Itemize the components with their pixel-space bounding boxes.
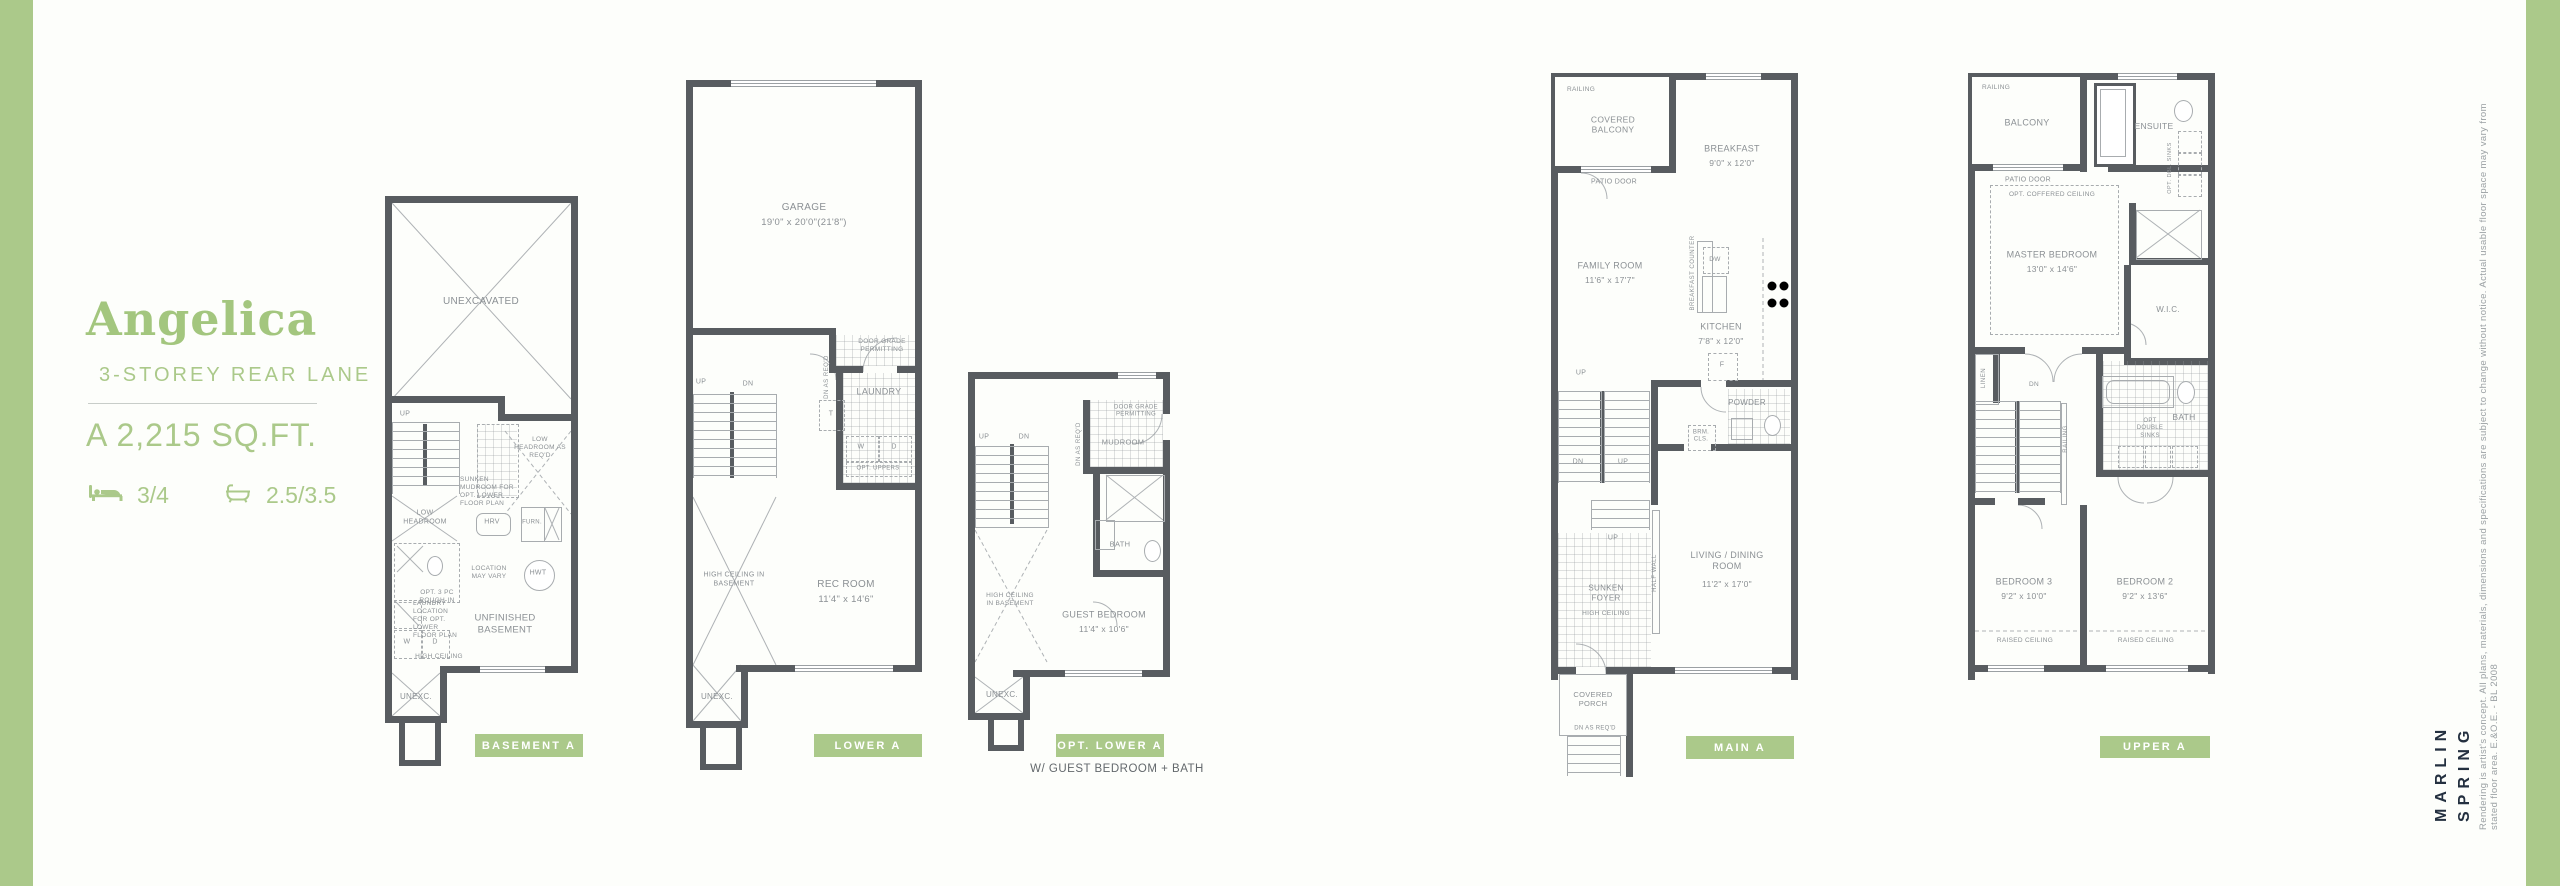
vanity-box bbox=[2178, 131, 2202, 153]
wall bbox=[1163, 372, 1170, 414]
room-label: MASTER BEDROOM bbox=[2007, 250, 2098, 261]
wall bbox=[686, 721, 748, 728]
wall bbox=[2129, 203, 2136, 265]
room-label: LIVING / DINING ROOM bbox=[1681, 550, 1773, 572]
window bbox=[795, 665, 893, 672]
wall bbox=[385, 396, 505, 403]
room-dims: 9'0" x 12'0" bbox=[1709, 158, 1755, 168]
window bbox=[1675, 667, 1772, 674]
room-label: SUNKEN FOYER bbox=[1576, 583, 1636, 603]
toilet bbox=[1144, 540, 1161, 562]
shower bbox=[1106, 475, 1165, 522]
wall bbox=[1551, 166, 1558, 680]
wall bbox=[1968, 347, 2025, 354]
stairs bbox=[975, 446, 1049, 528]
logo-line1: MARLIN bbox=[2433, 724, 2450, 822]
wall bbox=[1791, 73, 1798, 680]
opt-lower-plan-button: OPT. LOWER A bbox=[1056, 734, 1164, 757]
wall bbox=[1083, 400, 1090, 474]
porch-steps bbox=[1567, 736, 1621, 776]
stair-label: UP bbox=[1576, 370, 1586, 379]
wall bbox=[1975, 498, 1995, 505]
note-label: DN AS REQ'D bbox=[824, 355, 830, 399]
builder-logo: MARLINSPRING bbox=[2430, 722, 2476, 822]
note-label: LOCATION MAY VARY bbox=[466, 565, 512, 581]
sink-box bbox=[2172, 446, 2198, 468]
stairs bbox=[1975, 401, 2017, 493]
opt-lower-floorplan: DOOR GRADE PERMITTING MUDROOM DN AS REQ'… bbox=[968, 372, 1170, 757]
stair-label: UP bbox=[1618, 459, 1628, 468]
room-label: BATH bbox=[2172, 412, 2195, 422]
wall bbox=[1093, 570, 1170, 577]
note-label: HIGH CEILING IN BASEMENT bbox=[985, 592, 1035, 608]
baths-count: 2.5/3.5 bbox=[266, 482, 336, 509]
wall bbox=[2080, 73, 2087, 172]
wall bbox=[498, 414, 578, 421]
wall bbox=[1658, 444, 1684, 451]
wall bbox=[968, 372, 975, 720]
note-label: DN AS REQ'D bbox=[1574, 725, 1615, 732]
room-label: LAUNDRY bbox=[857, 387, 902, 398]
upper-floorplan: RAILING BALCONY PATIO DOOR ENSUITE OPT. … bbox=[1968, 73, 2215, 780]
room-dims: 9'2" x 13'6" bbox=[2122, 591, 2168, 601]
closet-label: LINEN bbox=[1981, 368, 1987, 388]
wall bbox=[836, 373, 843, 490]
foyer-steps bbox=[1591, 500, 1650, 530]
room-label: FAMILY ROOM bbox=[1578, 261, 1643, 272]
note-label: HIGH CEILING IN BASEMENT bbox=[702, 571, 766, 588]
left-green-bar bbox=[0, 0, 33, 886]
room-label: MUDROOM bbox=[1102, 437, 1145, 446]
page-title: Angelica bbox=[86, 292, 317, 346]
wall bbox=[2063, 164, 2087, 171]
wall bbox=[2018, 498, 2045, 505]
window bbox=[2118, 73, 2177, 80]
window bbox=[1065, 670, 1142, 677]
room-label: BEDROOM 3 bbox=[1996, 577, 2053, 588]
room-label: UNEXCAVATED bbox=[443, 296, 519, 308]
ensuite-shower-inner bbox=[2100, 89, 2126, 157]
garage-door bbox=[731, 80, 876, 87]
note-label: OPT. UPPERS bbox=[857, 465, 900, 472]
window bbox=[1118, 372, 1156, 379]
wall bbox=[1658, 380, 1701, 387]
note-label: RAISED CEILING bbox=[1997, 637, 2053, 645]
stair-label: DN bbox=[1019, 434, 1030, 443]
wall bbox=[686, 80, 693, 728]
washer-label: W bbox=[858, 444, 865, 453]
stairs bbox=[1604, 391, 1650, 483]
note-label: RAILING bbox=[2063, 425, 2069, 453]
wall bbox=[2096, 470, 2215, 477]
stairs bbox=[392, 422, 460, 494]
window bbox=[1988, 665, 2044, 672]
room-dims: 11'6" x 17'7" bbox=[1585, 275, 1635, 285]
toilet bbox=[1764, 415, 1781, 436]
features-row: 3/4 2.5/3.5 bbox=[88, 482, 336, 509]
room-dims: 19'0" x 20'0"(21'8") bbox=[761, 217, 846, 229]
wall bbox=[2082, 347, 2131, 354]
main-floorplan: RAILING COVERED BALCONY PATIO DOOR BREAK… bbox=[1551, 73, 1798, 780]
note-label: DOOR GRADE PERMITTING bbox=[853, 338, 911, 354]
room-label: REC ROOM bbox=[817, 579, 874, 591]
wall bbox=[440, 666, 447, 723]
note-label: PATIO DOOR bbox=[1591, 179, 1637, 188]
note-label: LAUNDRY LOCATION FOR OPT. LOWER FLOOR PL… bbox=[413, 600, 461, 640]
balcony-rail bbox=[1968, 73, 1972, 168]
legal-disclaimer: Rendering is artist's concept. All plans… bbox=[2478, 88, 2500, 830]
wall bbox=[2096, 354, 2103, 477]
note-label: OPT DOUBLE SINKS bbox=[2130, 418, 2170, 440]
hrv-label: HRV bbox=[484, 519, 500, 528]
room-label: BEDROOM 2 bbox=[2117, 577, 2174, 588]
balcony-rail bbox=[1968, 73, 2086, 77]
wall bbox=[686, 328, 836, 335]
stair-label: DN bbox=[743, 381, 754, 390]
stair-label: UP bbox=[696, 379, 706, 388]
room-label: COVERED BALCONY bbox=[1578, 115, 1648, 136]
wall bbox=[385, 196, 392, 723]
note-label: OPT. DBL. SINKS bbox=[2167, 142, 2173, 194]
coil-unit bbox=[544, 507, 562, 542]
model-type: 3-STOREY REAR LANE bbox=[99, 364, 371, 387]
room-label: BATH bbox=[1110, 539, 1131, 548]
note-label: LOW HEADROOM bbox=[402, 509, 448, 526]
sink bbox=[1731, 418, 1753, 440]
logo-line2: SPRING bbox=[2456, 725, 2473, 822]
beds-count: 3/4 bbox=[137, 482, 169, 509]
wall bbox=[2208, 73, 2215, 674]
room-label: COVERED PORCH bbox=[1565, 690, 1621, 708]
wall bbox=[1651, 166, 1676, 173]
wall bbox=[2080, 505, 2087, 665]
room-label: UNEXC. bbox=[400, 692, 432, 702]
patio-door bbox=[1581, 166, 1651, 173]
furn-label: FURN. bbox=[522, 519, 542, 526]
note-label: RAISED CEILING bbox=[2118, 637, 2174, 645]
balcony-rail bbox=[1551, 73, 1555, 170]
lower-plan-button: LOWER A bbox=[814, 734, 922, 757]
room-label: KITCHEN bbox=[1700, 322, 1742, 333]
right-green-bar bbox=[2526, 0, 2560, 886]
stair-railing bbox=[2061, 403, 2067, 505]
note-label: RAILING bbox=[1567, 86, 1595, 94]
room-dims: 9'2" x 10'0" bbox=[2001, 591, 2047, 601]
room-label: GUEST BEDROOM bbox=[1062, 610, 1146, 621]
stairs bbox=[693, 394, 777, 478]
linen-closet bbox=[1975, 354, 1999, 405]
note-label: DOOR GRADE PERMITTING bbox=[1109, 405, 1163, 420]
note-label: HIGH CEILING bbox=[1582, 610, 1630, 618]
patio-door bbox=[1993, 164, 2063, 171]
corner-shower bbox=[2136, 210, 2202, 260]
room-dims: 7'8" x 12'0" bbox=[1698, 336, 1744, 346]
dryer-label: D bbox=[891, 444, 896, 453]
room-label: UNEXC. bbox=[986, 690, 1018, 700]
stair-label: UP bbox=[979, 434, 989, 443]
bath-icon bbox=[223, 482, 253, 509]
wall bbox=[968, 713, 1030, 720]
wall bbox=[571, 196, 578, 673]
room-label: UNEXC. bbox=[701, 692, 733, 702]
wall bbox=[385, 196, 578, 203]
main-plan-button: MAIN A bbox=[1686, 736, 1794, 759]
washer-label: W bbox=[404, 639, 411, 648]
toilet-roughin bbox=[427, 556, 443, 576]
note-label: DN AS REQ'D bbox=[1076, 422, 1082, 466]
window bbox=[480, 666, 545, 673]
note-label: OPT. COFFERED CEILING bbox=[2009, 191, 2095, 199]
wall bbox=[836, 483, 922, 490]
dryer-label: D bbox=[432, 639, 437, 648]
room-label: UNFINISHED BASEMENT bbox=[455, 612, 555, 635]
window bbox=[2106, 665, 2188, 672]
kitchen-island bbox=[1702, 276, 1727, 313]
toilet bbox=[2174, 100, 2193, 122]
wall bbox=[1018, 720, 1024, 751]
wall bbox=[385, 716, 447, 723]
fridge-label: F bbox=[1720, 362, 1725, 371]
wall bbox=[1626, 667, 1633, 777]
note-label: LOW HEADROOM AS REQ'D bbox=[514, 436, 566, 460]
wall bbox=[741, 665, 748, 728]
wall bbox=[1669, 73, 1676, 173]
room-dims: 13'0" x 14'6" bbox=[2027, 264, 2078, 274]
stairs bbox=[2019, 401, 2061, 493]
wall bbox=[1968, 164, 1975, 680]
room-label: POWDER bbox=[1728, 398, 1766, 408]
wall bbox=[736, 728, 742, 770]
closet-label: T bbox=[829, 411, 834, 420]
closet-label: BRM. CLS. bbox=[1686, 430, 1716, 445]
lower-floorplan: GARAGE 19'0" x 20'0"(21'8") DOOR GRADE P… bbox=[686, 80, 922, 770]
basement-floorplan: UNEXCAVATED UP LOW HEADROOM SUNKEN MUDRO… bbox=[385, 196, 578, 770]
room-label: BREAKFAST bbox=[1704, 144, 1760, 155]
balcony-rail bbox=[1551, 73, 1676, 77]
wall bbox=[915, 80, 922, 672]
bathtub-inner bbox=[2106, 380, 2170, 404]
room-label: W.I.C. bbox=[2156, 305, 2180, 315]
vanity-box bbox=[2178, 175, 2202, 197]
wall bbox=[897, 366, 922, 373]
wall bbox=[1651, 380, 1658, 505]
stairs bbox=[1558, 391, 1602, 483]
room-dims: 11'4" x 10'6" bbox=[1079, 624, 1129, 634]
opt-lower-caption: W/ GUEST BEDROOM + BATH bbox=[1030, 762, 1204, 776]
stair-label: UP bbox=[1608, 535, 1618, 544]
wall bbox=[1772, 667, 1798, 674]
wall bbox=[435, 723, 441, 766]
room-dims: 11'2" x 17'0" bbox=[1702, 579, 1752, 589]
brochure-page: Angelica 3-STOREY REAR LANE A 2,215 SQ.F… bbox=[0, 0, 2560, 886]
room-label: BALCONY bbox=[2004, 118, 2049, 129]
vanity-box bbox=[2178, 153, 2202, 175]
wall bbox=[829, 366, 863, 373]
area-text: A 2,215 SQ.FT. bbox=[86, 417, 317, 454]
note-label: PATIO DOOR bbox=[2005, 177, 2051, 186]
upper-plan-button: UPPER A bbox=[2100, 736, 2210, 758]
sink-box bbox=[2118, 446, 2144, 468]
wall bbox=[1726, 380, 1791, 387]
room-label: GARAGE bbox=[782, 202, 827, 214]
note-label: HALF WALL bbox=[1652, 554, 1658, 592]
note-label: BREAKFAST COUNTER bbox=[1690, 235, 1696, 310]
dw-label: DW bbox=[1709, 256, 1720, 264]
room-label: ENSUITE bbox=[2135, 121, 2174, 131]
basement-plan-button: BASEMENT A bbox=[475, 734, 583, 757]
room-dims: 11'4" x 14'6" bbox=[818, 594, 873, 606]
stair-label: DN bbox=[1573, 459, 1584, 468]
stair-label: DN bbox=[2029, 381, 2039, 389]
sink-box bbox=[2145, 446, 2171, 468]
bed-icon bbox=[88, 482, 124, 509]
note-label: RAILING bbox=[1982, 84, 2010, 92]
toilet bbox=[2177, 381, 2195, 404]
hwt-label: HWT bbox=[530, 570, 547, 579]
stair-label: UP bbox=[400, 411, 410, 420]
wall bbox=[1551, 667, 1576, 674]
wall bbox=[1711, 444, 1791, 451]
window bbox=[1706, 73, 1761, 80]
note-label: HIGH CEILING bbox=[415, 653, 463, 661]
note-label: SUNKEN MUDROOM FOR OPT. LOWER FLOOR PLAN bbox=[460, 476, 518, 508]
divider bbox=[88, 403, 317, 404]
wall bbox=[1606, 667, 1675, 674]
